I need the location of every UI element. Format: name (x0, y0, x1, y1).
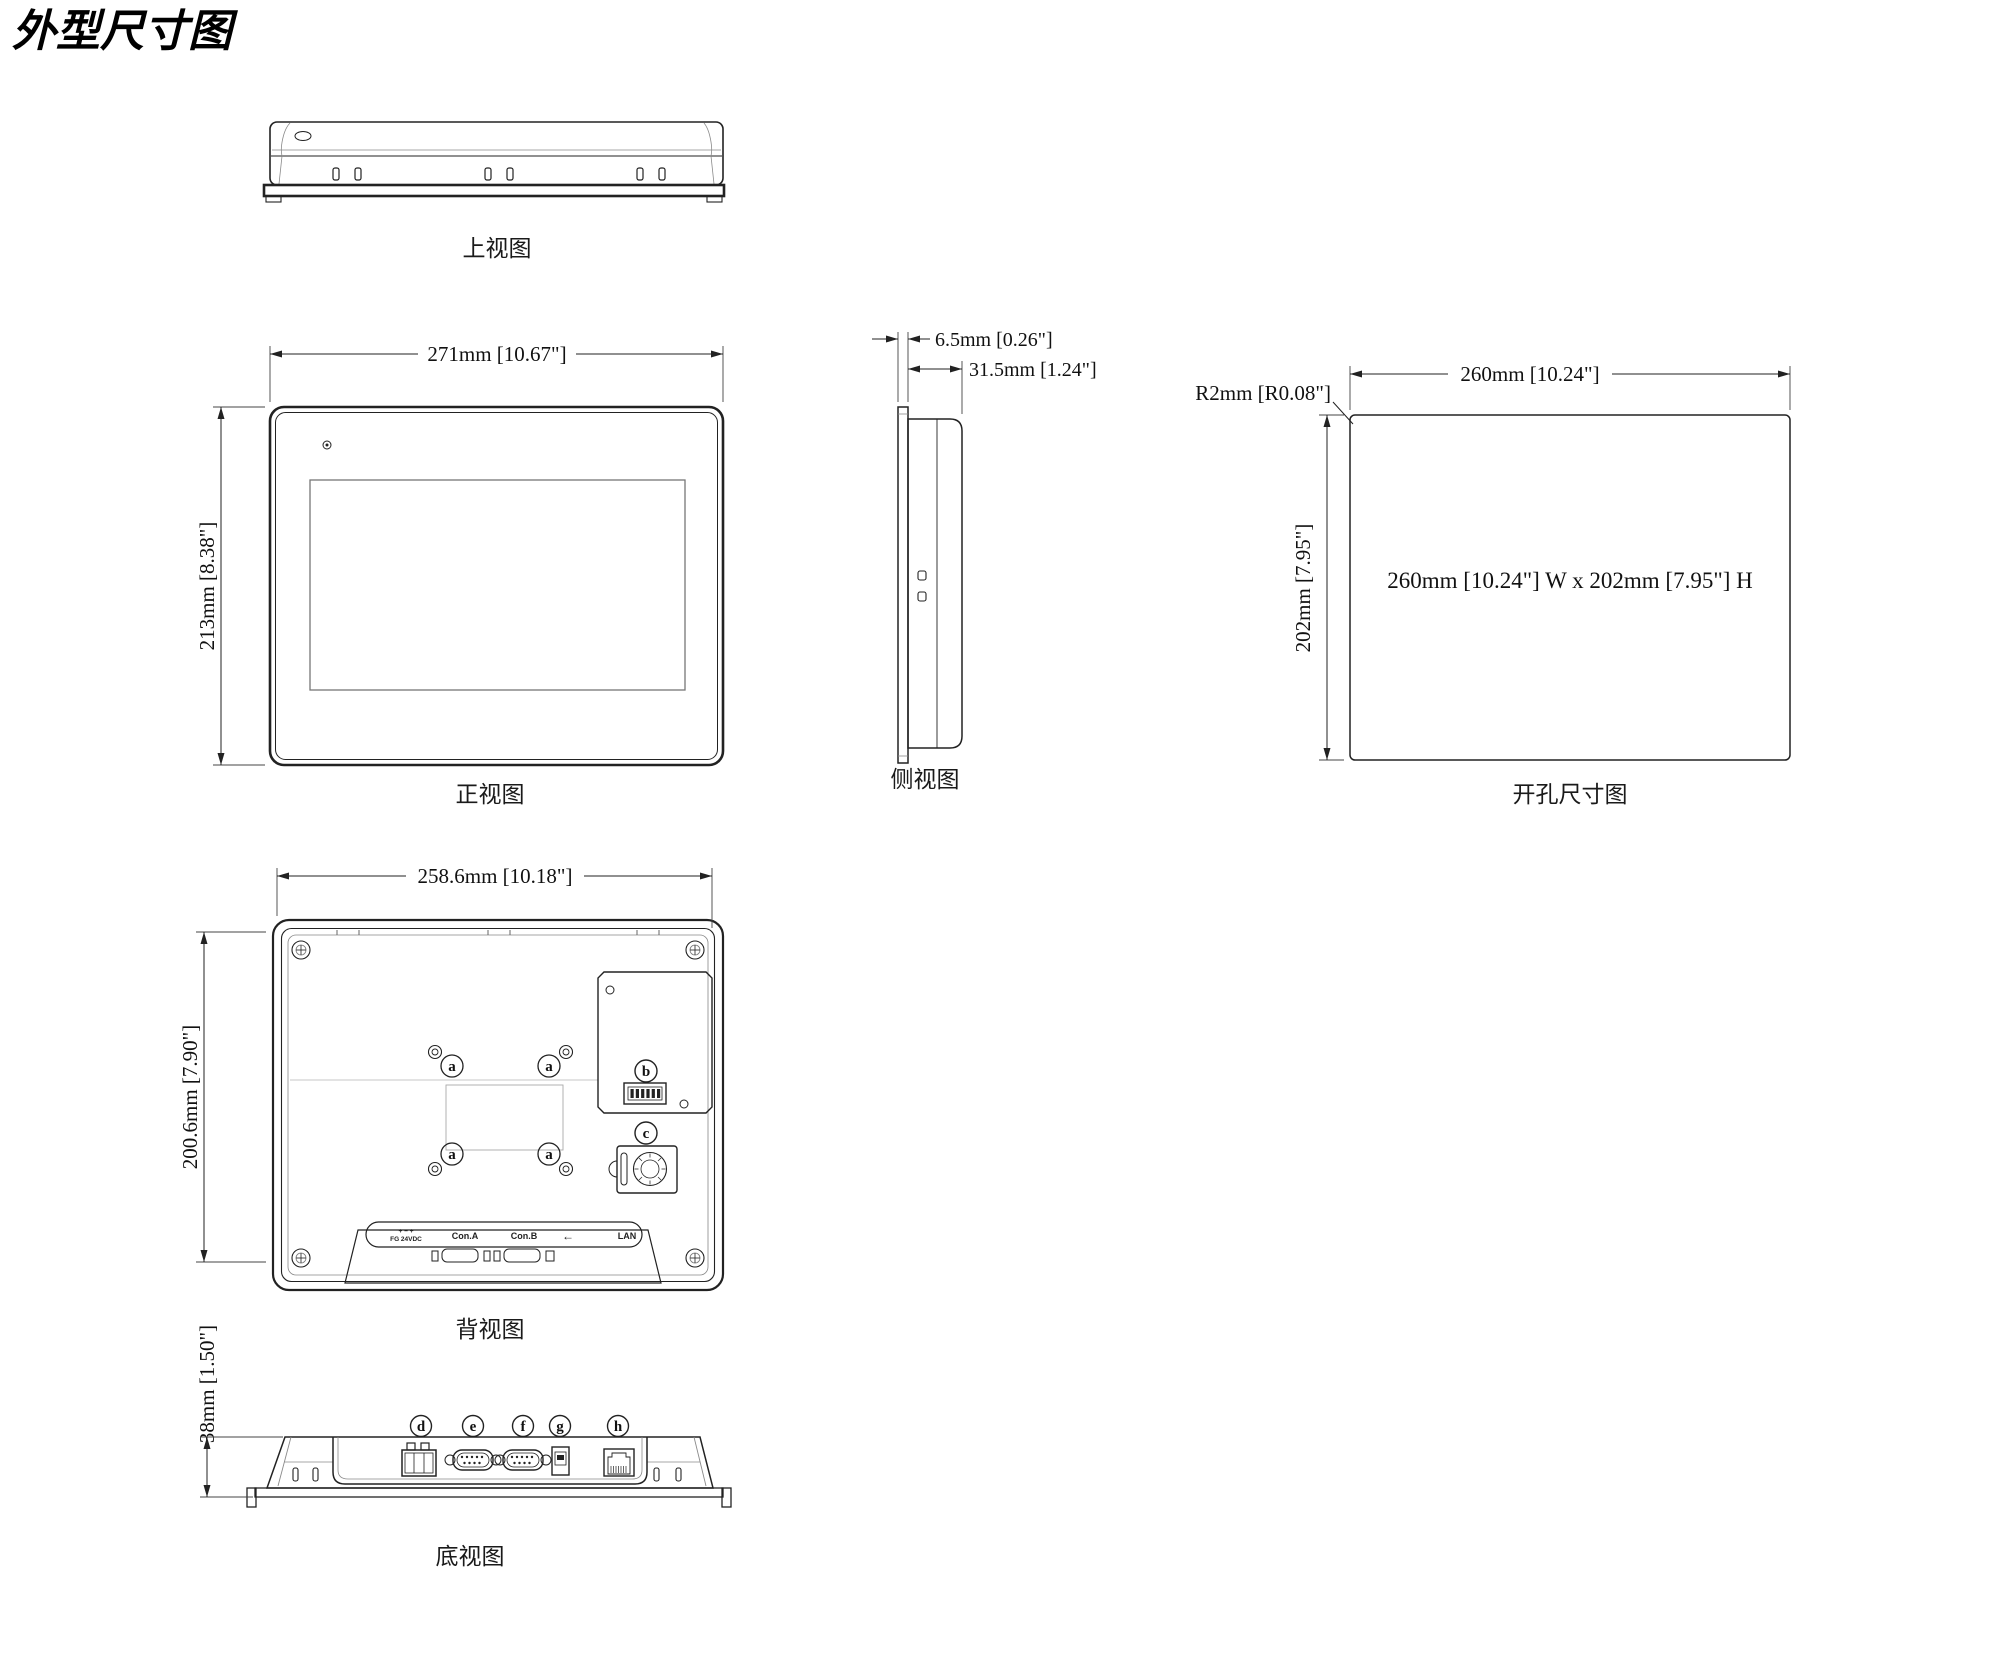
back-height-dim: 200.6mm [7.90"] (178, 1025, 202, 1169)
tag-e: e (470, 1419, 477, 1435)
cutout-height-dim: 202mm [7.95"] (1291, 524, 1315, 653)
top-view-corner-line (279, 123, 290, 184)
bottom-view: d e f g h 38mm [1.50"] 底视图 (195, 1324, 731, 1569)
bottom-view-body (267, 1437, 713, 1488)
side-view-body (908, 419, 962, 748)
side-view: 6.5mm [0.26"] 31.5mm [1.24"] 侧视图 (872, 329, 1097, 792)
tag-a: a (448, 1147, 456, 1163)
tag-a-group: a a a a (441, 1055, 560, 1165)
bottom-height-dim: 38mm [1.50"] (195, 1325, 219, 1443)
usb-icon: ← (562, 1229, 574, 1243)
side-view-bezel-flange (898, 407, 908, 763)
front-width-dim: 271mm [10.67"] (427, 342, 566, 366)
con-b-label: Con.B (511, 1231, 538, 1241)
dip-switch (624, 1083, 666, 1104)
front-view-led-dot (326, 444, 329, 447)
front-view-label: 正视图 (456, 781, 525, 807)
back-view: a a a a b c (178, 864, 723, 1342)
bottom-view-connector-recess (333, 1437, 647, 1484)
bottom-view-recess-inner-line (338, 1437, 642, 1479)
tag-g: g (556, 1419, 564, 1435)
top-view-label: 上视图 (463, 235, 532, 261)
top-view-speaker-oval (295, 132, 311, 141)
back-view-option-panel (598, 972, 712, 1113)
bottom-view-label: 底视图 (436, 1543, 505, 1569)
cutout-center-text: 260mm [10.24"] W x 202mm [7.95"] H (1387, 568, 1752, 593)
top-view-vent-slots (333, 168, 665, 180)
connector-tags: d e f g h (411, 1416, 629, 1437)
tag-a: a (448, 1059, 456, 1075)
tag-d: d (417, 1419, 426, 1435)
lan-label: LAN (618, 1231, 637, 1241)
bottom-view-bezel-flange (255, 1488, 723, 1497)
tag-c: c (643, 1126, 650, 1142)
side-view-label: 侧视图 (891, 766, 960, 792)
panel-screw-hole (606, 986, 614, 994)
front-height-dim: 213mm [8.38"] (195, 522, 219, 651)
cutout-radius-dim: R2mm [R0.08"] (1195, 381, 1331, 405)
tag-f: f (521, 1419, 527, 1435)
panel-screw-hole (680, 1100, 688, 1108)
back-view-vesa-outline (446, 1085, 563, 1150)
power-text-label: FG 24VDC (390, 1236, 422, 1243)
back-view-vent-ticks (337, 930, 659, 935)
front-view-bezel-line (276, 413, 718, 760)
db9-connector-a (445, 1450, 501, 1470)
back-view-label: 背视图 (456, 1316, 525, 1342)
top-view-corner-line (704, 123, 714, 184)
tag-a: a (545, 1059, 553, 1075)
top-view: 上视图 (264, 122, 724, 261)
power-symbols-label: + − + (399, 1228, 414, 1235)
front-view: 271mm [10.67"] 213mm [8.38"] 正视图 (195, 342, 723, 807)
front-view-outline (270, 407, 723, 765)
back-width-dim: 258.6mm [10.18"] (418, 864, 573, 888)
cutout-view: 260mm [10.24"] W x 202mm [7.95"] H 260mm… (1195, 362, 1790, 807)
power-terminal-connector (402, 1443, 436, 1476)
usb-port-connector (552, 1447, 569, 1475)
side-view-slot (918, 571, 926, 580)
top-view-mount-plate (264, 185, 724, 196)
tag-a: a (545, 1147, 553, 1163)
tag-h: h (614, 1419, 623, 1435)
side-view-slot (918, 592, 926, 601)
cutout-view-label: 开孔尺寸图 (1513, 781, 1628, 807)
side-flange-dim: 6.5mm [0.26"] (935, 329, 1053, 351)
dimension-drawing-page: 外型尺寸图 上视图 271mm [10.67"] (0, 0, 2000, 1667)
lan-rj45-connector (604, 1449, 634, 1476)
db9-connector-b (495, 1450, 551, 1470)
top-view-outline (270, 122, 723, 185)
page-title: 外型尺寸图 (12, 7, 238, 56)
rotary-switch (609, 1146, 677, 1193)
side-depth-dim: 31.5mm [1.24"] (969, 359, 1097, 381)
tag-b: b (642, 1064, 650, 1080)
cutout-width-dim: 260mm [10.24"] (1460, 362, 1599, 386)
back-view-face-line (288, 935, 708, 1275)
drawing-canvas: 外型尺寸图 上视图 271mm [10.67"] (0, 0, 2000, 1667)
back-view-connector-cutouts (432, 1249, 554, 1262)
front-view-screen (310, 480, 685, 690)
back-view-inner-line (282, 929, 715, 1282)
con-a-label: Con.A (452, 1231, 479, 1241)
back-view-outline (273, 920, 723, 1290)
